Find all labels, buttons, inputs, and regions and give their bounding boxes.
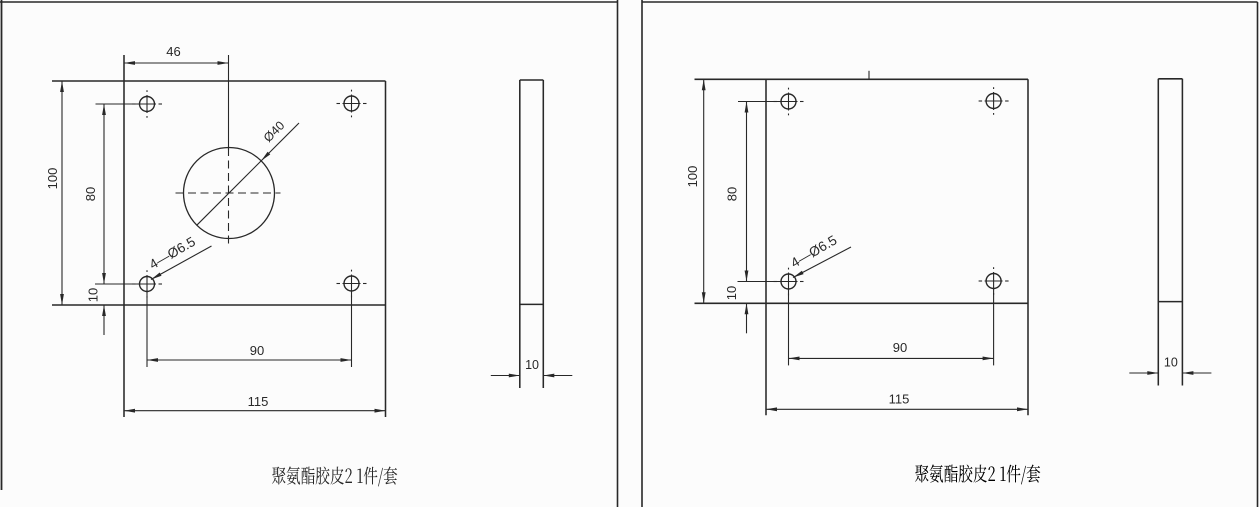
svg-text:10: 10	[724, 286, 739, 300]
svg-text:100: 100	[685, 166, 700, 188]
svg-text:115: 115	[889, 392, 910, 407]
svg-text:10: 10	[525, 358, 539, 372]
svg-text:80: 80	[725, 187, 740, 201]
svg-text:46: 46	[166, 44, 180, 59]
svg-text:100: 100	[45, 168, 60, 190]
svg-text:90: 90	[893, 340, 907, 355]
svg-text:115: 115	[248, 394, 269, 409]
svg-text:10: 10	[1164, 356, 1178, 370]
svg-text:90: 90	[250, 343, 264, 358]
svg-text:10: 10	[86, 288, 101, 302]
svg-text:80: 80	[83, 187, 98, 201]
